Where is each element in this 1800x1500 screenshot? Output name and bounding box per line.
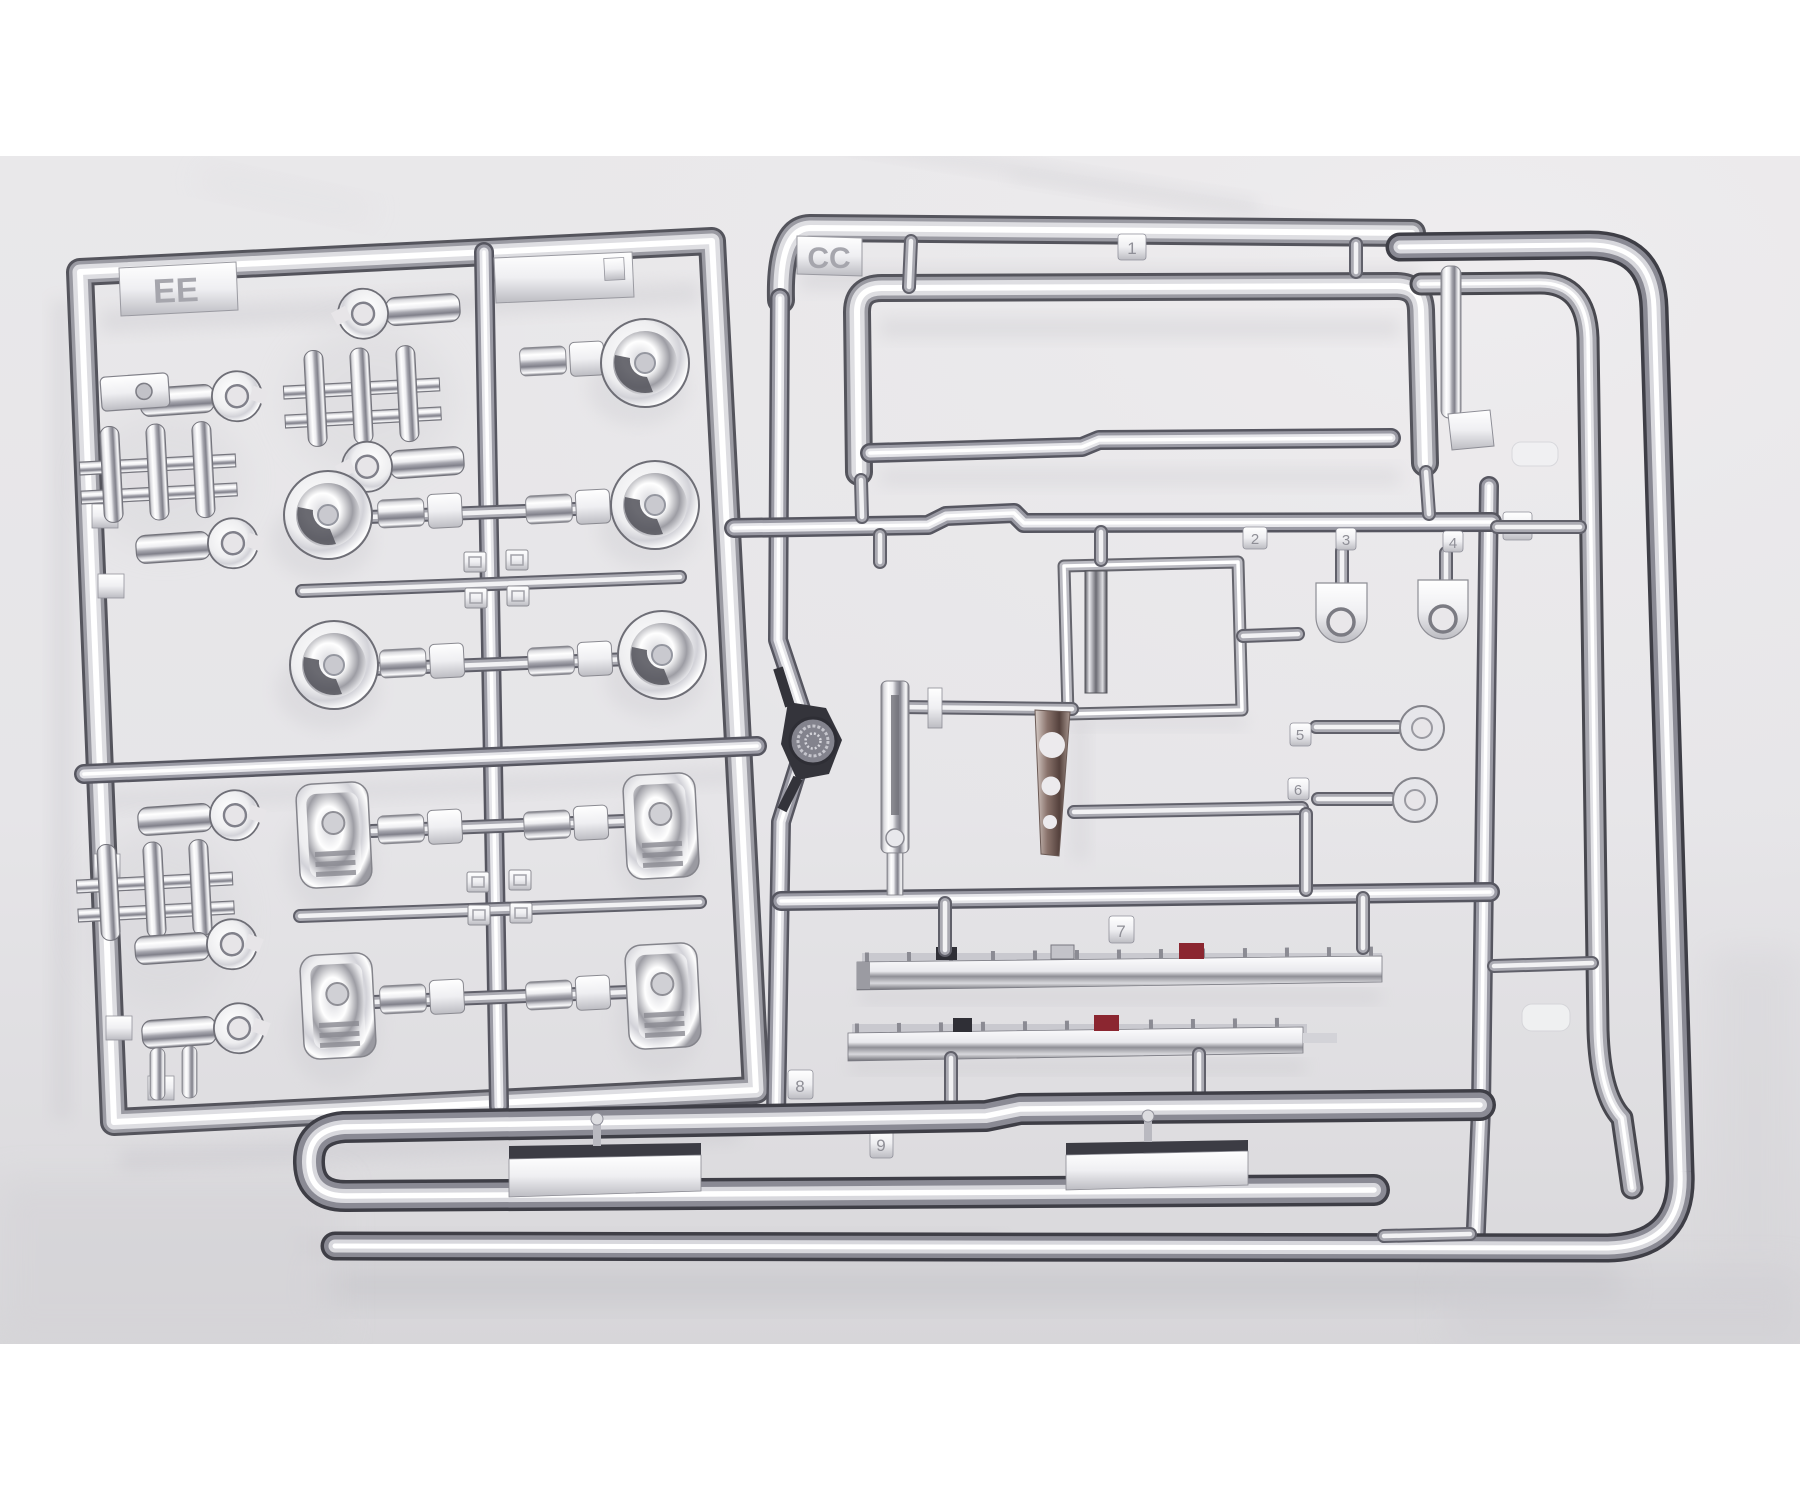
svg-text:4: 4 <box>1449 535 1457 552</box>
svg-text:6: 6 <box>1294 782 1302 799</box>
svg-text:EE: EE <box>152 271 199 311</box>
svg-text:1: 1 <box>1127 239 1136 258</box>
svg-text:5: 5 <box>1296 727 1304 744</box>
svg-text:7: 7 <box>1116 922 1125 941</box>
svg-text:9: 9 <box>876 1136 885 1155</box>
svg-text:CC: CC <box>807 242 850 275</box>
svg-text:8: 8 <box>795 1077 804 1096</box>
svg-text:3: 3 <box>1342 532 1350 549</box>
svg-text:2: 2 <box>1251 531 1259 548</box>
